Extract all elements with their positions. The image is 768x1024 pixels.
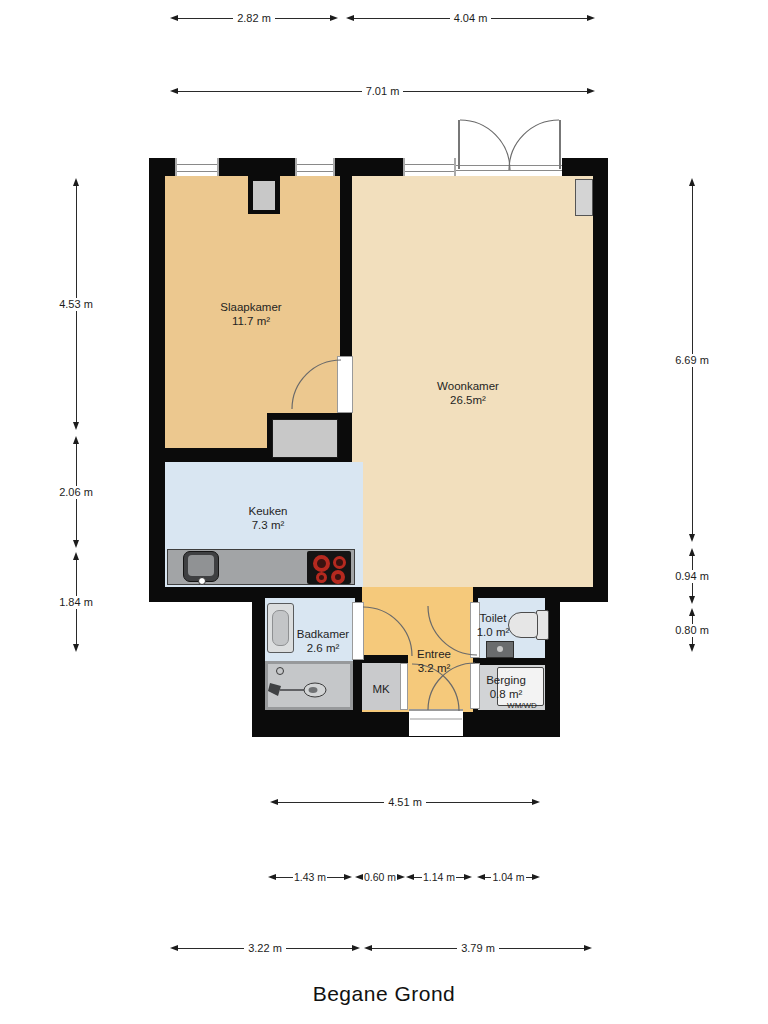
shower-tray-floor xyxy=(268,664,350,707)
shaft-top-right xyxy=(575,179,593,216)
floorplan-canvas: Slaapkamer 11.7 m² Woonkamer 26.5m² Keuk… xyxy=(0,0,768,1024)
room-name: Keuken xyxy=(248,504,287,518)
room-name: Toilet xyxy=(477,611,510,625)
slaapkamer-door xyxy=(337,356,353,413)
dim-left-badkamer-height: 1.84 m xyxy=(46,552,106,652)
room-area: 11.7 m² xyxy=(220,314,281,328)
mk-label: MK xyxy=(361,683,401,695)
dim-left-slaapkamer-height: 4.53 m xyxy=(46,178,106,430)
toilet-handbasin-drain xyxy=(497,646,503,652)
berging-label: Berging 0.8 m² xyxy=(486,673,526,701)
burner-icon xyxy=(316,572,327,583)
chimney-shaft-top xyxy=(253,181,275,210)
dim-right-berging-height: 0.80 m xyxy=(662,608,722,652)
toilet-label: Toilet 1.0 m² xyxy=(477,611,510,639)
keuken-label: Keuken 7.3 m² xyxy=(248,504,287,532)
duct-shaft-lower xyxy=(272,419,338,458)
woonkamer-label: Woonkamer 26.5m² xyxy=(437,379,499,407)
window xyxy=(175,158,219,176)
dim-top-total-width: 7.01 m xyxy=(170,84,595,98)
kitchen-faucet xyxy=(198,577,206,585)
room-area: 3.2 m² xyxy=(417,661,451,675)
floor-title: Begane Grond xyxy=(234,982,534,1006)
window xyxy=(403,158,456,176)
burner-icon xyxy=(331,570,345,584)
dim-chain-badkamer: 1.43 m xyxy=(268,870,352,884)
dim-chain-mk: 0.60 m xyxy=(355,870,403,884)
room-area: 1.0 m² xyxy=(477,625,510,639)
room-name: Badkamer xyxy=(297,627,349,641)
berging-door xyxy=(470,663,480,709)
dim-chain-toilet: 1.04 m xyxy=(477,870,540,884)
dim-right-woonkamer-height: 6.69 m xyxy=(662,178,722,542)
french-door-opening xyxy=(456,158,562,176)
dim-chain-entree: 1.14 m xyxy=(406,870,472,884)
entree-label: Entree 3.2 m² xyxy=(417,647,451,675)
burner-icon xyxy=(333,556,346,569)
dim-top-woonkamer-width: 4.04 m xyxy=(346,11,595,25)
dim-bottom-left-section: 3.22 m xyxy=(170,941,360,955)
room-name: Entree xyxy=(417,647,451,661)
toilet-bowl xyxy=(508,612,538,638)
dim-top-slaapkamer-width: 2.82 m xyxy=(170,11,338,25)
dim-bottom-extension-width: 4.51 m xyxy=(270,795,540,809)
dim-bottom-right-section: 3.79 m xyxy=(364,941,592,955)
slaapkamer-label: Slaapkamer 11.7 m² xyxy=(220,300,281,328)
badkamer-door xyxy=(352,602,364,660)
washbasin-bowl xyxy=(272,610,289,646)
mk-closet-door xyxy=(400,663,408,710)
kitchen-sink-basin xyxy=(188,555,214,576)
dim-left-keuken-height: 2.06 m xyxy=(46,436,106,548)
dim-right-toilet-height: 0.94 m xyxy=(662,548,722,604)
room-area: 0.8 m² xyxy=(486,687,526,701)
badkamer-label: Badkamer 2.6 m² xyxy=(297,627,349,655)
room-name: Woonkamer xyxy=(437,379,499,393)
window xyxy=(295,158,335,176)
burner-icon xyxy=(313,555,330,572)
room-area: 7.3 m² xyxy=(248,518,287,532)
room-name: Slaapkamer xyxy=(220,300,281,314)
room-area: 26.5m² xyxy=(437,393,499,407)
wmwd-label: WM/WD xyxy=(499,701,545,710)
room-name: Berging xyxy=(486,673,526,687)
room-area: 2.6 m² xyxy=(297,641,349,655)
front-door xyxy=(409,709,463,736)
